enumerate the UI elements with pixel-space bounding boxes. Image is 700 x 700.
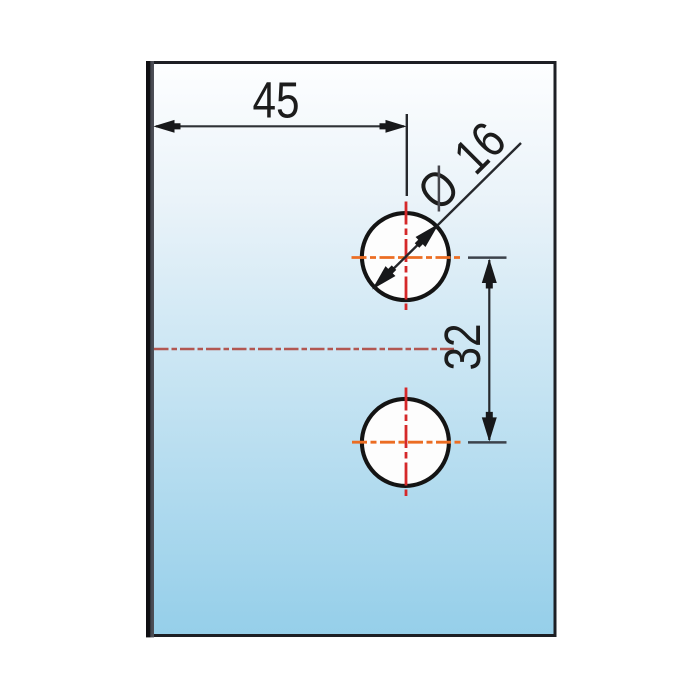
svg-text:32: 32: [434, 323, 491, 370]
svg-text:45: 45: [252, 72, 299, 129]
